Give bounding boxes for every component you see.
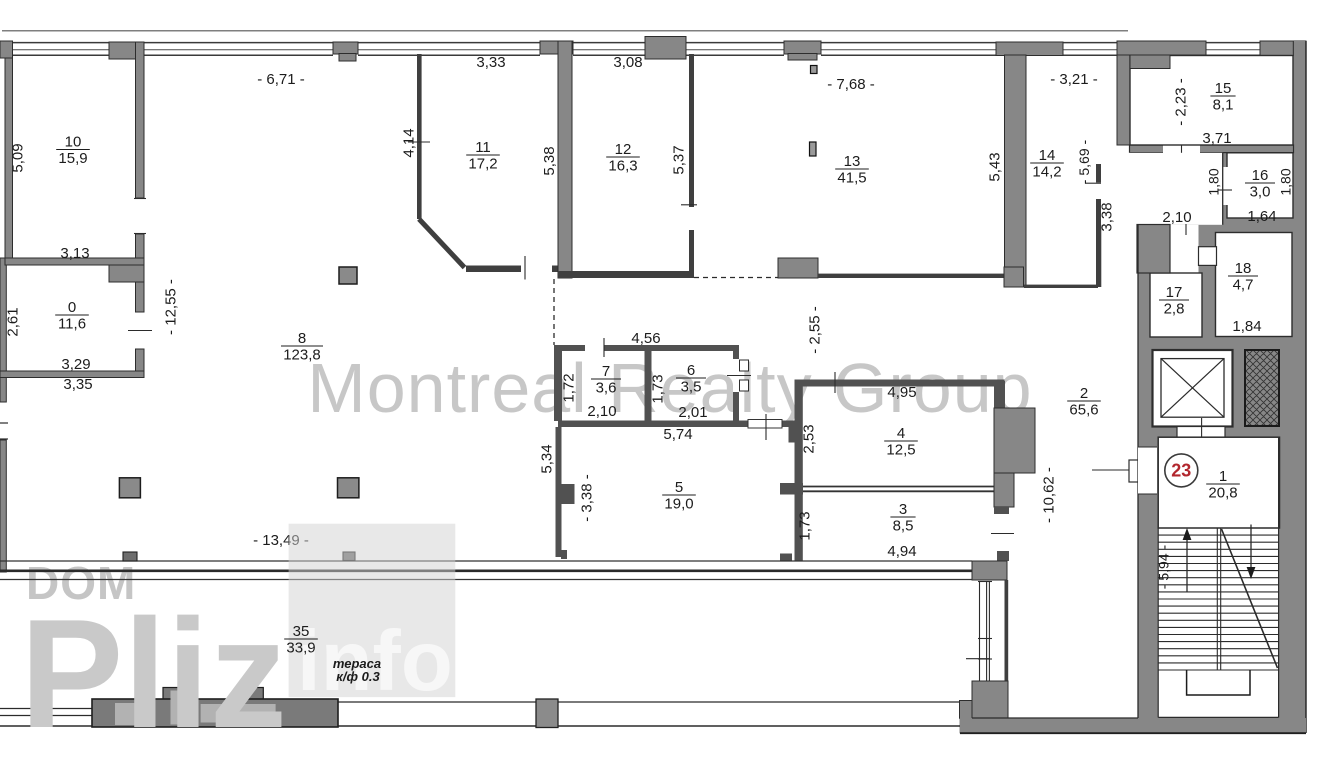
svg-text:4,56: 4,56 <box>631 330 660 347</box>
svg-text:3,13: 3,13 <box>60 245 89 262</box>
svg-text:41,5: 41,5 <box>837 170 866 187</box>
svg-text:4,94: 4,94 <box>887 543 916 560</box>
svg-text:0: 0 <box>68 299 76 316</box>
svg-text:123,8: 123,8 <box>283 347 321 364</box>
svg-text:5: 5 <box>675 479 683 496</box>
svg-text:2,61: 2,61 <box>5 307 22 336</box>
svg-text:14: 14 <box>1039 147 1056 164</box>
svg-text:5,09: 5,09 <box>10 143 27 172</box>
svg-text:15: 15 <box>1215 80 1232 97</box>
svg-text:8: 8 <box>298 330 306 347</box>
svg-text:4,7: 4,7 <box>1233 277 1254 294</box>
svg-text:16: 16 <box>1252 167 1269 184</box>
svg-text:12,5: 12,5 <box>886 442 915 459</box>
svg-text:18: 18 <box>1235 260 1252 277</box>
svg-text:3,71: 3,71 <box>1202 130 1231 147</box>
svg-text:2,8: 2,8 <box>1164 301 1185 318</box>
svg-text:2,01: 2,01 <box>678 404 707 421</box>
svg-text:2,10: 2,10 <box>1162 209 1191 226</box>
svg-text:Pliz: Pliz <box>20 587 287 760</box>
svg-text:3,5: 3,5 <box>681 379 702 396</box>
svg-text:23: 23 <box>1171 461 1191 481</box>
svg-text:1,72: 1,72 <box>561 373 578 402</box>
svg-text:1,73: 1,73 <box>797 511 814 540</box>
svg-text:12: 12 <box>615 141 632 158</box>
svg-text:8,5: 8,5 <box>893 518 914 535</box>
svg-text:1,84: 1,84 <box>1232 318 1261 335</box>
svg-text:- 6,71 -: - 6,71 - <box>257 71 305 88</box>
svg-text:1,80: 1,80 <box>1278 168 1294 195</box>
svg-text:8,1: 8,1 <box>1213 97 1234 114</box>
svg-text:13: 13 <box>844 153 861 170</box>
svg-text:4,14: 4,14 <box>401 128 418 157</box>
svg-text:- 10,62 -: - 10,62 - <box>1041 467 1058 523</box>
svg-text:2,53: 2,53 <box>801 424 818 453</box>
svg-text:10: 10 <box>65 134 82 151</box>
svg-text:65,6: 65,6 <box>1069 402 1098 419</box>
svg-text:1,73: 1,73 <box>650 374 667 403</box>
svg-text:7: 7 <box>602 363 610 380</box>
svg-text:3,38: 3,38 <box>1099 202 1116 231</box>
svg-text:15,9: 15,9 <box>58 150 87 167</box>
svg-text:1,80: 1,80 <box>1206 168 1222 195</box>
svg-text:3: 3 <box>899 501 907 518</box>
svg-text:2,10: 2,10 <box>587 403 616 420</box>
svg-text:- 12,55 -: - 12,55 - <box>163 279 180 335</box>
svg-text:11: 11 <box>475 139 491 156</box>
svg-text:33,9: 33,9 <box>286 640 315 657</box>
svg-text:5,34: 5,34 <box>539 444 556 473</box>
svg-text:17: 17 <box>1166 284 1183 301</box>
svg-text:- 2,55 -: - 2,55 - <box>807 306 824 354</box>
svg-text:3,33: 3,33 <box>476 54 505 71</box>
svg-text:5,38: 5,38 <box>541 146 558 175</box>
svg-text:3,08: 3,08 <box>613 54 642 71</box>
svg-text:16,3: 16,3 <box>608 158 637 175</box>
svg-text:1,64: 1,64 <box>1247 208 1276 225</box>
svg-text:- 2,23 -: - 2,23 - <box>1173 78 1190 126</box>
svg-text:4,95: 4,95 <box>887 384 916 401</box>
svg-text:1: 1 <box>1219 468 1227 485</box>
svg-text:- 3,21 -: - 3,21 - <box>1050 71 1098 88</box>
svg-text:- 7,68 -: - 7,68 - <box>827 76 875 93</box>
svg-text:- 5,69 -: - 5,69 - <box>1076 139 1092 184</box>
svg-text:4: 4 <box>897 425 905 442</box>
svg-text:11,6: 11,6 <box>58 316 86 333</box>
svg-text:- 5,94 -: - 5,94 - <box>1156 544 1172 589</box>
svg-text:5,43: 5,43 <box>987 152 1004 181</box>
svg-text:2: 2 <box>1080 385 1088 402</box>
svg-text:35: 35 <box>293 623 310 640</box>
svg-text:3,29: 3,29 <box>61 356 90 373</box>
svg-text:6: 6 <box>687 362 695 379</box>
svg-text:17,2: 17,2 <box>468 156 497 173</box>
svg-text:5,37: 5,37 <box>671 145 688 174</box>
svg-text:Montreal Realty Group: Montreal Realty Group <box>307 349 1032 427</box>
svg-text:14,2: 14,2 <box>1032 164 1061 181</box>
svg-text:3,6: 3,6 <box>596 380 617 397</box>
svg-text:5,74: 5,74 <box>663 426 692 443</box>
svg-text:- 3,38 -: - 3,38 - <box>579 474 596 522</box>
svg-text:19,0: 19,0 <box>664 496 693 513</box>
svg-text:к/ф 0.3: к/ф 0.3 <box>336 669 380 684</box>
svg-text:3,35: 3,35 <box>63 376 92 393</box>
svg-text:20,8: 20,8 <box>1208 485 1237 502</box>
svg-text:3,0: 3,0 <box>1250 184 1271 201</box>
